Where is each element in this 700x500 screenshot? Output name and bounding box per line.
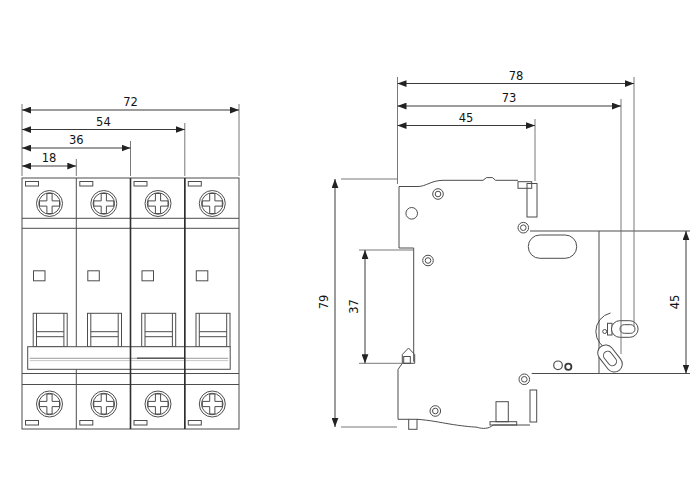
dim-front-width-3-modules: 54 (22, 115, 185, 130)
dim-label-54: 54 (96, 115, 111, 129)
rivet-icon (433, 189, 444, 200)
dim-label-45-top: 45 (459, 111, 474, 125)
top-lip (518, 182, 532, 189)
rivet-icon (519, 374, 530, 385)
dim-front-width-1-module: 18 (22, 151, 76, 166)
toggle-handle-on (608, 321, 639, 338)
dim-label-36: 36 (69, 133, 84, 147)
toggle-hub (596, 313, 611, 350)
dim-label-37: 37 (347, 299, 361, 314)
indicator-dots (554, 361, 572, 370)
mold-circle (406, 208, 418, 220)
dim-front-face-height: 45 (668, 231, 686, 374)
terminal-shroud-bottom (530, 390, 537, 422)
front-view: 72 54 36 18 (22, 95, 239, 429)
dim-label-79: 79 (317, 295, 331, 310)
din-rail-recess (399, 248, 414, 362)
din-clip (402, 348, 414, 363)
dim-front-width-2-modules: 36 (22, 133, 131, 148)
test-button (490, 402, 517, 425)
side-view: 78 73 45 37 45 (347, 69, 690, 430)
dim-label-45-right: 45 (668, 295, 682, 310)
handle-tie-bar (28, 347, 231, 370)
dim-label-72: 72 (123, 95, 138, 109)
dim-label-78: 78 (509, 69, 524, 83)
dim-label-18: 18 (42, 151, 57, 165)
dim-side-body-depth: 45 (398, 111, 536, 126)
back-face-lower (398, 363, 409, 419)
side-profile-top (399, 178, 518, 187)
rivet-icon (518, 222, 529, 233)
dimension-drawing: 72 54 36 18 79 (0, 0, 700, 500)
front-dimensions: 72 54 36 18 (22, 95, 239, 176)
side-profile-bottom (417, 419, 530, 428)
din-clip-tab (409, 419, 417, 429)
drawing-canvas: 72 54 36 18 79 (0, 0, 700, 500)
dim-label-73: 73 (502, 91, 517, 105)
label-window (528, 235, 576, 258)
dim-rail-recess-height: 37 (347, 250, 413, 363)
dim-front-total-width: 72 (22, 95, 239, 110)
rivet-icon (430, 406, 441, 417)
rivet-icon (423, 255, 434, 266)
dim-side-total-depth: 78 (398, 69, 635, 84)
dim-side-depth-to-lever: 73 (398, 91, 622, 106)
